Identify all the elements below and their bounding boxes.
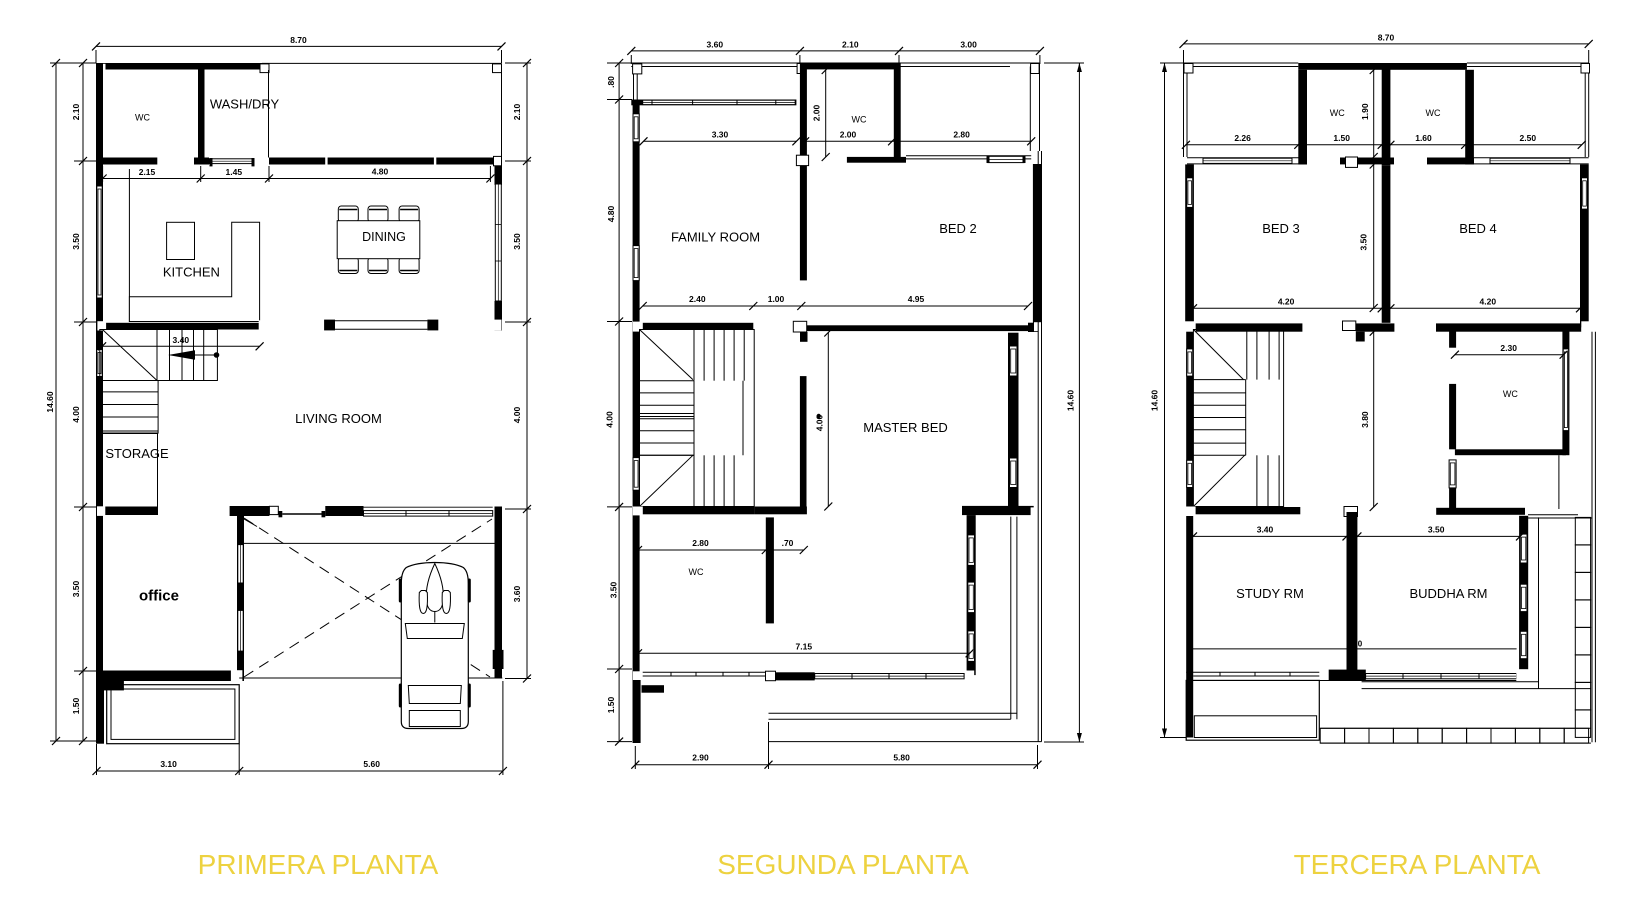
svg-text:2.10: 2.10 [512,103,522,120]
svg-text:PRIMERA PLANTA: PRIMERA PLANTA [198,849,439,880]
svg-text:3.30: 3.30 [712,130,729,140]
svg-text:TERCERA PLANTA: TERCERA PLANTA [1294,849,1541,880]
svg-text:2.00: 2.00 [840,130,857,140]
svg-text:3.50: 3.50 [71,580,81,597]
svg-text:office: office [139,588,179,605]
svg-text:14.60: 14.60 [45,391,55,413]
svg-text:2.40: 2.40 [689,294,706,304]
svg-text:2.26: 2.26 [1234,133,1251,143]
svg-text:STUDY RM: STUDY RM [1236,586,1304,601]
svg-text:14.60: 14.60 [1066,390,1076,412]
svg-text:3.50: 3.50 [1428,525,1445,535]
svg-text:WC: WC [1330,108,1345,118]
svg-text:3.50: 3.50 [512,233,522,250]
svg-text:4.00: 4.00 [512,406,522,423]
svg-text:BUDDHA RM: BUDDHA RM [1409,586,1487,601]
svg-text:2.30: 2.30 [1500,343,1517,353]
svg-text:3.50: 3.50 [71,233,81,250]
svg-text:4.00: 4.00 [71,406,81,423]
svg-text:BED 3: BED 3 [1262,221,1300,236]
svg-text:3.80: 3.80 [1360,411,1370,428]
svg-text:3.10: 3.10 [160,759,177,769]
svg-text:1.50: 1.50 [606,696,616,713]
svg-text:1.00: 1.00 [768,294,785,304]
svg-text:4.80: 4.80 [606,205,616,222]
svg-text:DINING: DINING [362,230,406,244]
svg-text:2.10: 2.10 [71,103,81,120]
svg-text:2.00: 2.00 [812,104,822,121]
svg-text:3.40: 3.40 [1257,525,1274,535]
svg-text:1.50: 1.50 [1333,133,1350,143]
svg-text:2.80: 2.80 [953,130,970,140]
svg-text:1.50: 1.50 [71,697,81,714]
svg-text:.80: .80 [606,76,616,88]
svg-text:4.95: 4.95 [908,294,925,304]
svg-text:3.00: 3.00 [960,39,977,49]
svg-text:3.40: 3.40 [173,335,190,345]
svg-text:1.45: 1.45 [226,167,243,177]
svg-text:2.90: 2.90 [692,753,709,763]
svg-text:5.60: 5.60 [363,759,380,769]
svg-text:3.50: 3.50 [609,581,619,598]
svg-text:1.60: 1.60 [1415,133,1432,143]
svg-text:4.20: 4.20 [1278,297,1295,307]
svg-text:5.80: 5.80 [893,753,910,763]
svg-text:2.50: 2.50 [1520,133,1537,143]
svg-text:STORAGE: STORAGE [105,446,169,461]
svg-text:WC: WC [1503,389,1518,399]
svg-text:8.70: 8.70 [290,35,307,45]
svg-text:4.80: 4.80 [372,167,389,177]
svg-text:FAMILY ROOM: FAMILY ROOM [671,230,760,245]
svg-text:WC: WC [135,113,150,123]
svg-text:2.15: 2.15 [139,167,156,177]
svg-text:1.90: 1.90 [1360,103,1370,120]
svg-text:SEGUNDA PLANTA: SEGUNDA PLANTA [717,849,969,880]
svg-text:KITCHEN: KITCHEN [163,265,220,280]
svg-text:0: 0 [1358,640,1363,649]
svg-text:BED 4: BED 4 [1459,221,1497,236]
svg-text:8.70: 8.70 [1378,33,1395,43]
svg-text:2.10: 2.10 [842,39,859,49]
svg-text:4.00: 4.00 [605,411,615,428]
svg-text:.70: .70 [782,538,794,548]
svg-text:WASH/DRY: WASH/DRY [210,97,280,112]
svg-text:BED 2: BED 2 [939,221,977,236]
svg-text:7.15: 7.15 [796,642,813,652]
svg-text:4.20: 4.20 [1480,297,1497,307]
svg-text:14.60: 14.60 [1150,390,1160,412]
svg-text:2.80: 2.80 [692,538,709,548]
svg-text:3.60: 3.60 [707,39,724,49]
svg-text:3.50: 3.50 [1359,234,1369,251]
svg-text:MASTER BED: MASTER BED [863,420,948,435]
svg-text:3.60: 3.60 [512,585,522,602]
svg-text:WC: WC [1426,108,1441,118]
svg-text:LIVING ROOM: LIVING ROOM [295,411,382,426]
svg-text:WC: WC [852,115,867,125]
svg-text:WC: WC [689,567,704,577]
